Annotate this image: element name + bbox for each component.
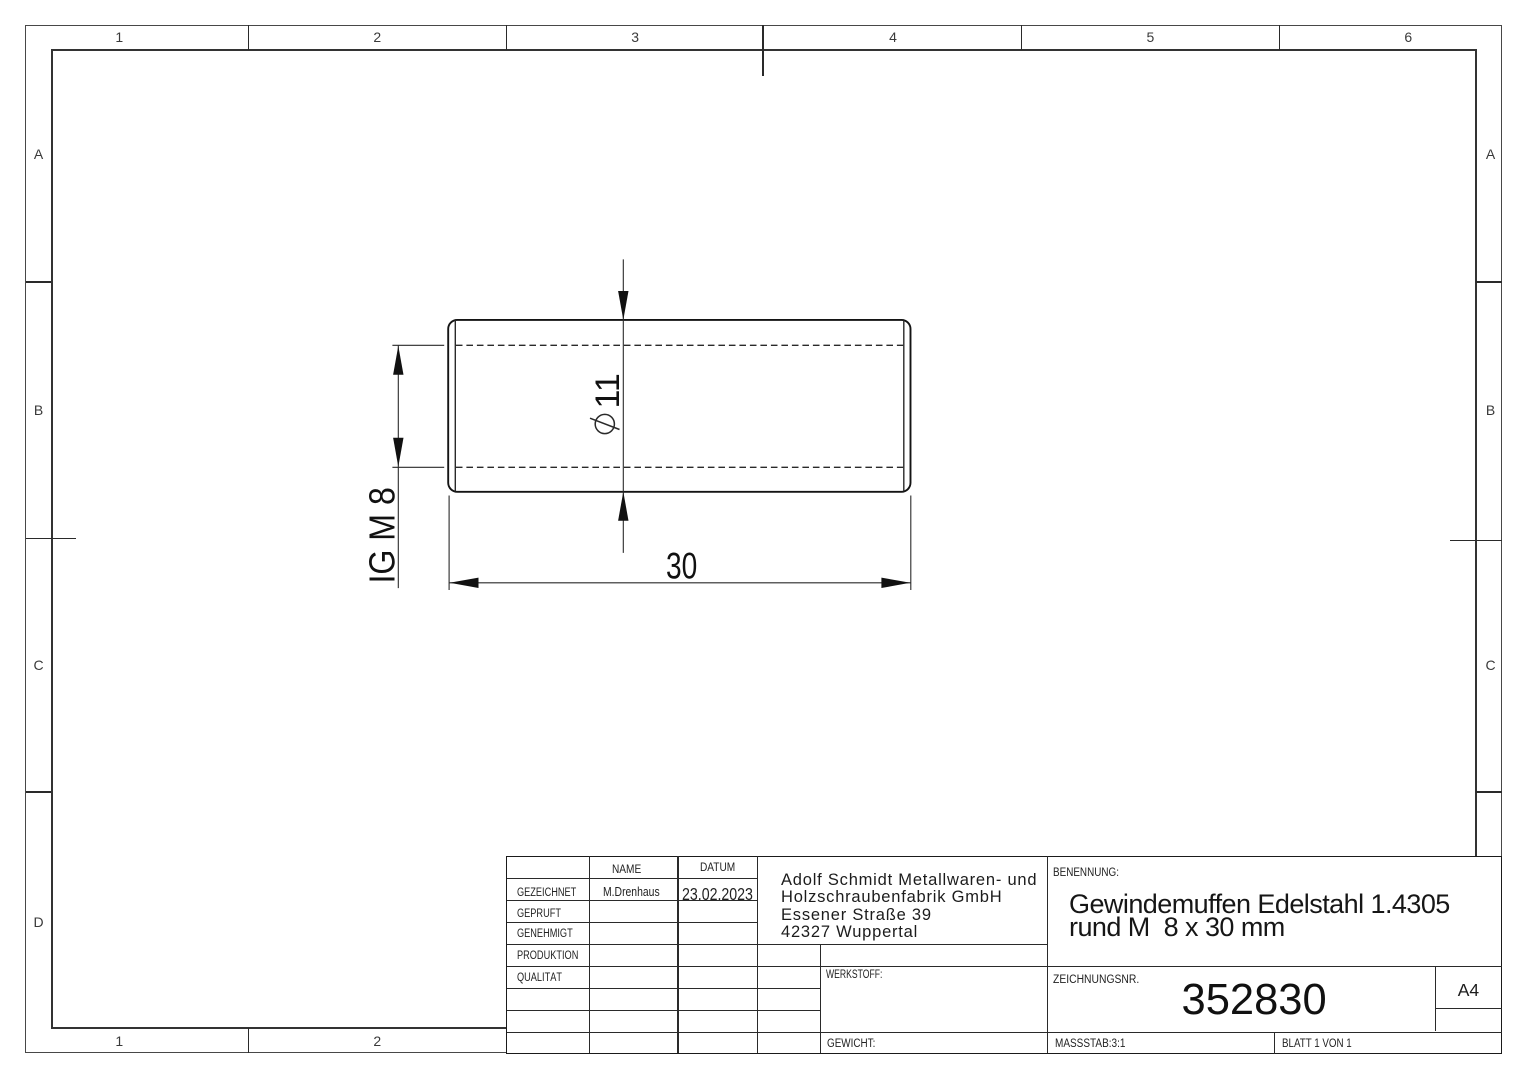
- svg-text:30: 30: [666, 546, 697, 588]
- svg-text:11: 11: [589, 373, 627, 408]
- svg-text:IG M 8: IG M 8: [363, 487, 403, 583]
